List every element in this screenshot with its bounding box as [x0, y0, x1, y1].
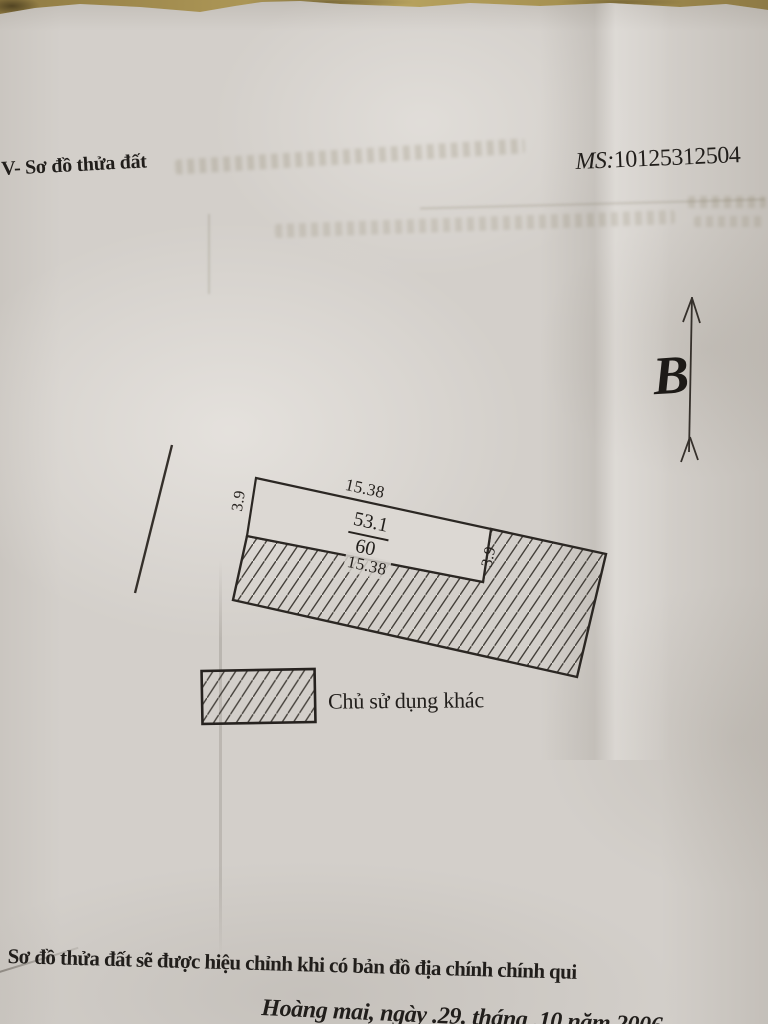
- dim-left-width: 3.9: [229, 489, 250, 512]
- legend-swatch: [202, 669, 316, 724]
- north-label: B: [651, 343, 691, 407]
- legend-label: Chủ sử dụng khác: [328, 687, 484, 714]
- paper-sheet: V- Sơ đồ thửa đất MS:10125312504: [0, 0, 768, 1024]
- scanned-document: V- Sơ đồ thửa đất MS:10125312504: [0, 0, 768, 1024]
- boundary-line: [135, 445, 172, 593]
- plot-diagram: [0, 0, 768, 1024]
